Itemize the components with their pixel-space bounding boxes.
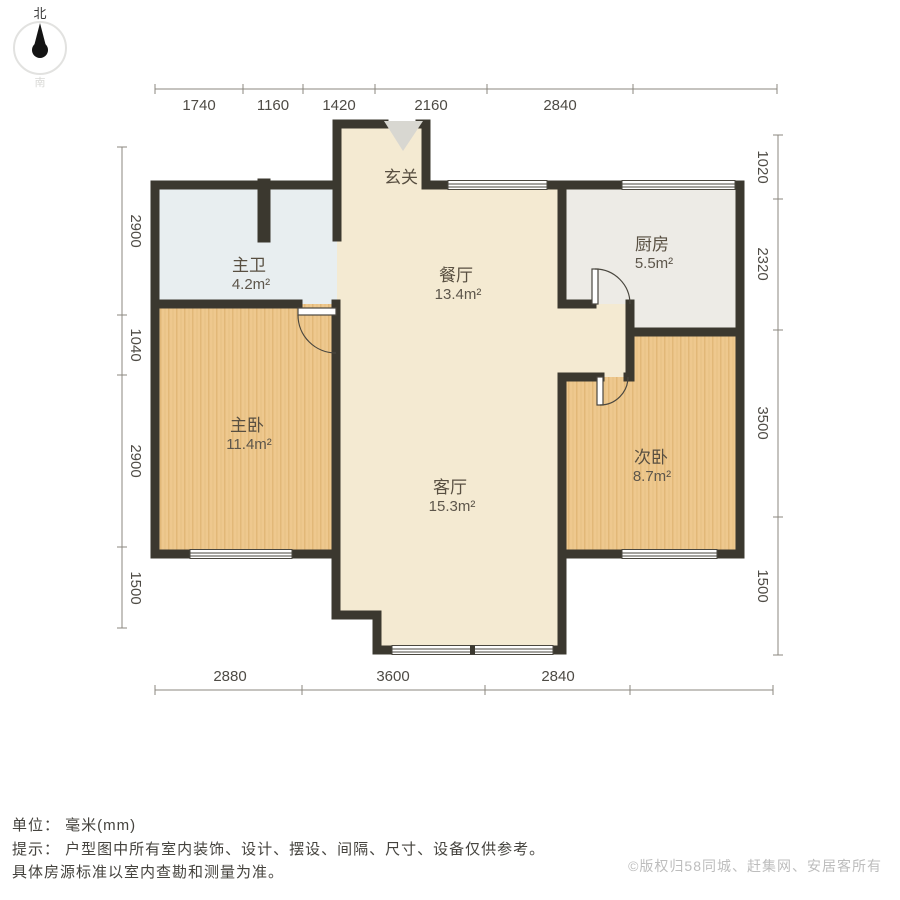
dim-top-5: 2840: [543, 97, 576, 114]
dim-right-3: 3500: [754, 406, 771, 439]
compass: 北 南: [14, 6, 66, 89]
dim-left-4: 1500: [127, 571, 144, 604]
footer-copyright: ©版权归58同城、赶集网、安居客所有: [628, 856, 882, 876]
dim-right-4: 1500: [754, 569, 771, 602]
room-area-master-bedroom: 11.4m²: [226, 436, 272, 453]
window-dining-top: [448, 181, 547, 190]
room-label-master-bath: 主卫: [232, 256, 266, 275]
dim-top-3: 1420: [322, 97, 355, 114]
room-area-kitchen: 5.5m²: [635, 255, 673, 272]
room-label-entry: 玄关: [384, 168, 418, 187]
compass-south-label: 南: [35, 76, 46, 89]
bay-window-mullion: [470, 646, 475, 655]
room-area-living: 15.3m²: [429, 498, 476, 515]
room-label-living: 客厅: [433, 478, 467, 497]
footer-tip-line2: 具体房源标准以室内查勘和测量为准。: [12, 861, 284, 882]
dim-left-3: 2900: [127, 444, 144, 477]
footer-unit-note: 单位： 毫米(mm): [12, 814, 136, 835]
floor-plan-svg: 玄关 餐厅 13.4m² 厨房 5.5m² 主卫 4.2m² 主卧 11.4m²…: [0, 0, 900, 810]
dim-top-2: 1160: [257, 97, 289, 114]
dim-right-1: 1020: [754, 150, 771, 183]
window-second-bedroom: [622, 550, 717, 559]
dim-line-top: [155, 84, 777, 94]
dim-top-1: 1740: [182, 97, 215, 114]
dim-left-2: 1040: [127, 328, 144, 361]
window-master-bedroom: [190, 550, 292, 559]
dim-bottom-3: 2840: [541, 668, 574, 685]
room-label-dining: 餐厅: [439, 266, 473, 285]
room-area-dining: 13.4m²: [435, 286, 482, 303]
dim-line-right: [773, 135, 783, 655]
room-area-master-bath: 4.2m²: [232, 276, 270, 293]
dim-bottom-1: 2880: [213, 668, 246, 685]
dim-bottom-2: 3600: [376, 668, 409, 685]
room-label-master-bedroom: 主卧: [230, 416, 264, 435]
room-area-second-bedroom: 8.7m²: [633, 468, 671, 485]
dim-left-1: 2900: [127, 214, 144, 247]
compass-north-label: 北: [33, 6, 46, 21]
floor-fills: [155, 124, 740, 650]
dim-line-left: [117, 147, 127, 628]
compass-needle-hub: [32, 42, 48, 58]
room-label-second-bedroom: 次卧: [634, 448, 668, 467]
dim-line-bottom: [155, 685, 773, 695]
dim-top-4: 2160: [414, 97, 447, 114]
footer-tip-line1: 提示： 户型图中所有室内装饰、设计、摆设、间隔、尺寸、设备仅供参考。: [12, 838, 545, 859]
window-living-bay: [392, 646, 553, 655]
room-label-kitchen: 厨房: [635, 235, 669, 254]
window-kitchen-top: [622, 181, 735, 190]
dim-right-2: 2320: [754, 247, 771, 280]
